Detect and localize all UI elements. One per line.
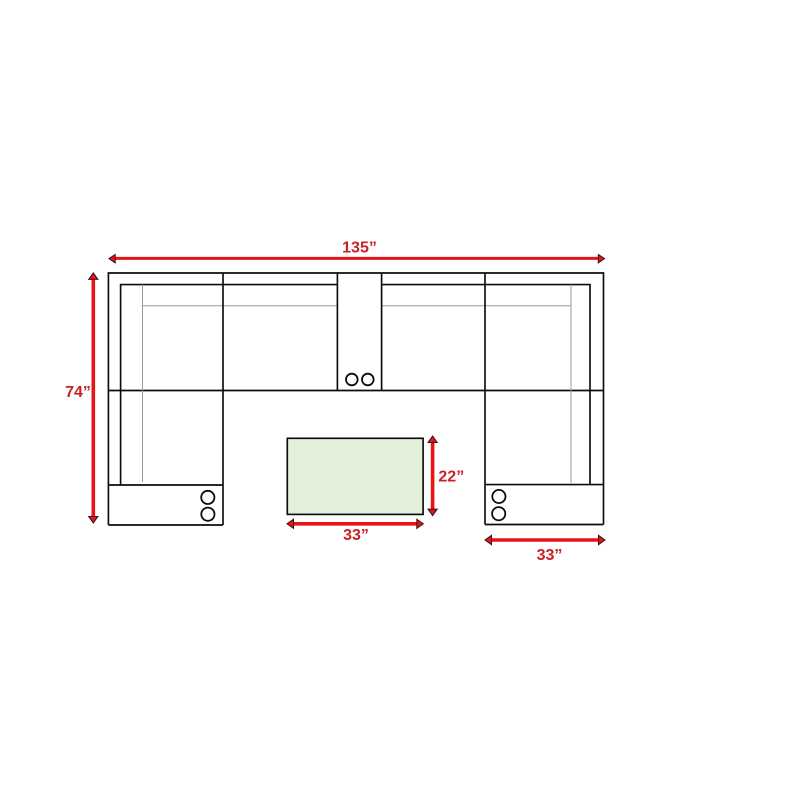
svg-text:74”: 74” — [65, 384, 91, 401]
svg-text:33”: 33” — [537, 547, 563, 564]
svg-text:33”: 33” — [343, 527, 369, 544]
svg-text:135”: 135” — [342, 240, 377, 257]
svg-text:22”: 22” — [438, 469, 464, 486]
